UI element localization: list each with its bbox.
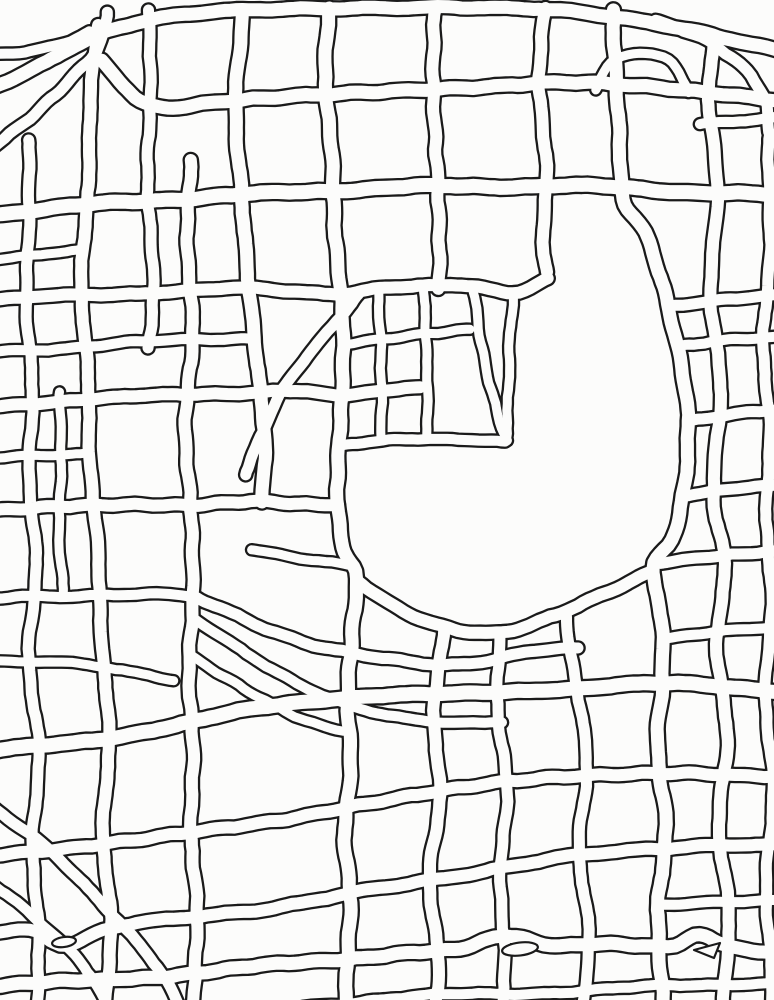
street-mini-v-380 <box>378 290 382 440</box>
street-stub-left-252 <box>0 249 84 261</box>
street-outline-blob-bottom <box>357 572 651 633</box>
street-rung-e-560 <box>660 550 774 564</box>
street-h-third <box>0 185 774 217</box>
street-rung-e-905 <box>662 900 774 905</box>
street-v-545-top <box>538 8 547 272</box>
street-v-east-edge <box>763 132 774 1000</box>
street-stub-left-455 <box>0 453 84 459</box>
street-blob-west-shelf <box>340 439 505 445</box>
map-canvas <box>0 0 774 1000</box>
street-v-712 <box>708 38 729 1000</box>
street-v-440-top <box>432 8 440 289</box>
street-v-60-mid <box>59 392 64 596</box>
street-fill-layer <box>0 7 774 1000</box>
street-mini-v-425 <box>424 290 429 436</box>
hand-drawn-street-map <box>0 0 774 1000</box>
